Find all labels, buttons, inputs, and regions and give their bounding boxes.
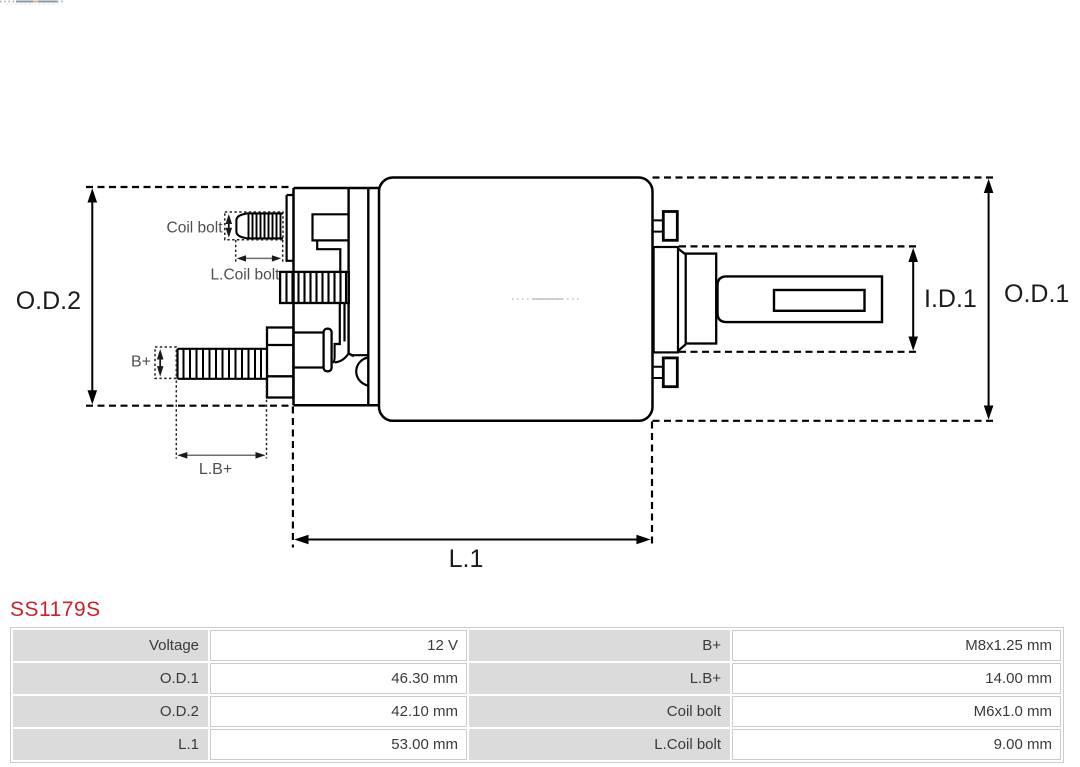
svg-text:O.D.1: O.D.1 bbox=[1004, 280, 1069, 308]
svg-text:O.D.2: O.D.2 bbox=[16, 287, 81, 315]
svg-text:I.D.1: I.D.1 bbox=[924, 285, 977, 313]
svg-text:L.1: L.1 bbox=[449, 545, 484, 573]
svg-text:L.B+: L.B+ bbox=[199, 461, 232, 478]
svg-text:Coil bolt: Coil bolt bbox=[167, 220, 224, 237]
svg-text:L.Coil bolt: L.Coil bolt bbox=[211, 267, 281, 284]
svg-text:B+: B+ bbox=[131, 354, 151, 371]
